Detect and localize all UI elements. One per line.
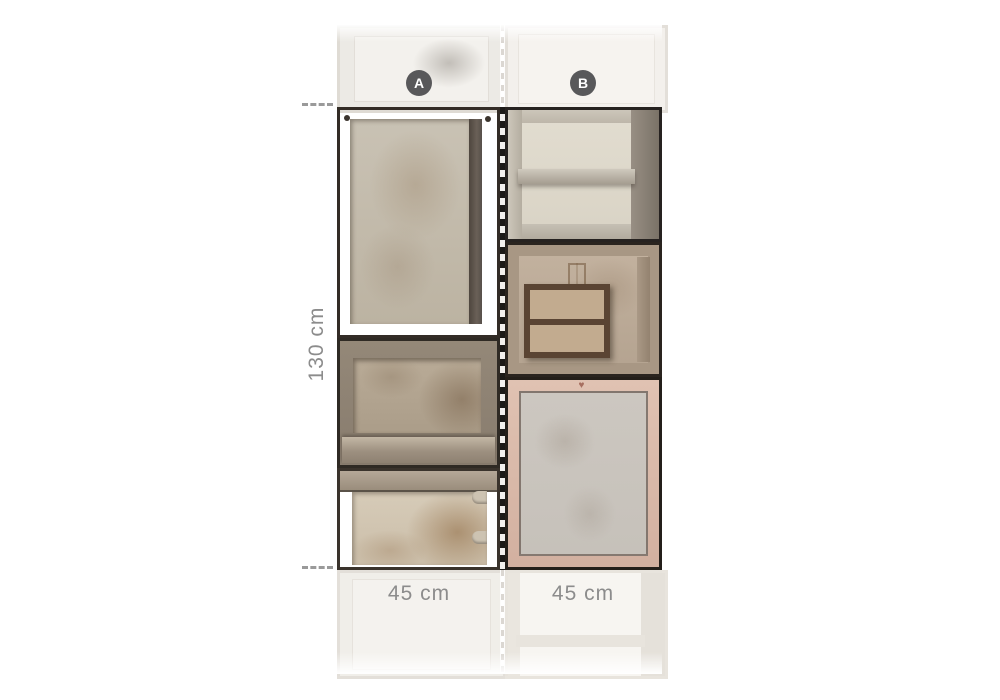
crate-a3-notch <box>472 491 487 504</box>
height-dimension-label: 130 cm <box>302 304 332 384</box>
crate-a1-stretcher-back <box>337 107 500 338</box>
panel-b-strip: ♥ <box>505 107 662 570</box>
height-tick-top <box>302 103 333 106</box>
heart-mark-icon: ♥ <box>579 381 585 391</box>
panel-a-width-label: 45 cm <box>369 582 469 606</box>
screw-icon <box>344 115 350 121</box>
crate-a2-bottom-bar <box>342 437 495 463</box>
crate-b1-stretcher-frame <box>505 107 662 242</box>
crate-a3-stained-box <box>337 468 500 570</box>
crate-a1-shadow-channel <box>469 119 482 324</box>
crate-b2-stamped-box <box>505 242 662 377</box>
crate-a1-panel <box>350 119 469 324</box>
crate-b2-small-crossbar <box>530 319 604 325</box>
crate-b2-small-frame <box>524 284 610 358</box>
panel-b-badge: B <box>570 70 596 96</box>
wallpaper-photo: ♥ <box>337 107 662 570</box>
crate-a2-shallow-box <box>337 338 500 468</box>
wallpaper-dimension-diagram: ♥ A B 130 cm 45 cm 45 cm <box>0 0 1000 700</box>
panel-b-width-label: 45 cm <box>533 582 633 606</box>
screw-icon <box>485 116 491 122</box>
crate-a3-interior <box>352 492 487 565</box>
faded-crossbar <box>516 635 645 647</box>
crate-b2-side-plank <box>637 257 650 362</box>
fade-out-top <box>337 24 662 42</box>
crate-b1-crossbar <box>518 169 635 184</box>
crate-b1-right-bar <box>631 110 659 239</box>
crate-a3-top-bar <box>340 471 497 492</box>
panel-a-strip <box>337 107 500 570</box>
crate-a3-notch <box>472 531 487 544</box>
fade-out-bottom <box>337 652 662 674</box>
pattern-repeat-preview-top <box>337 25 662 107</box>
crate-b3-canvas <box>519 391 648 556</box>
panel-a-badge: A <box>406 70 432 96</box>
crate-a2-recess <box>353 358 481 433</box>
height-tick-bottom <box>302 566 333 569</box>
crate-b3-pink-frame: ♥ <box>505 377 662 570</box>
